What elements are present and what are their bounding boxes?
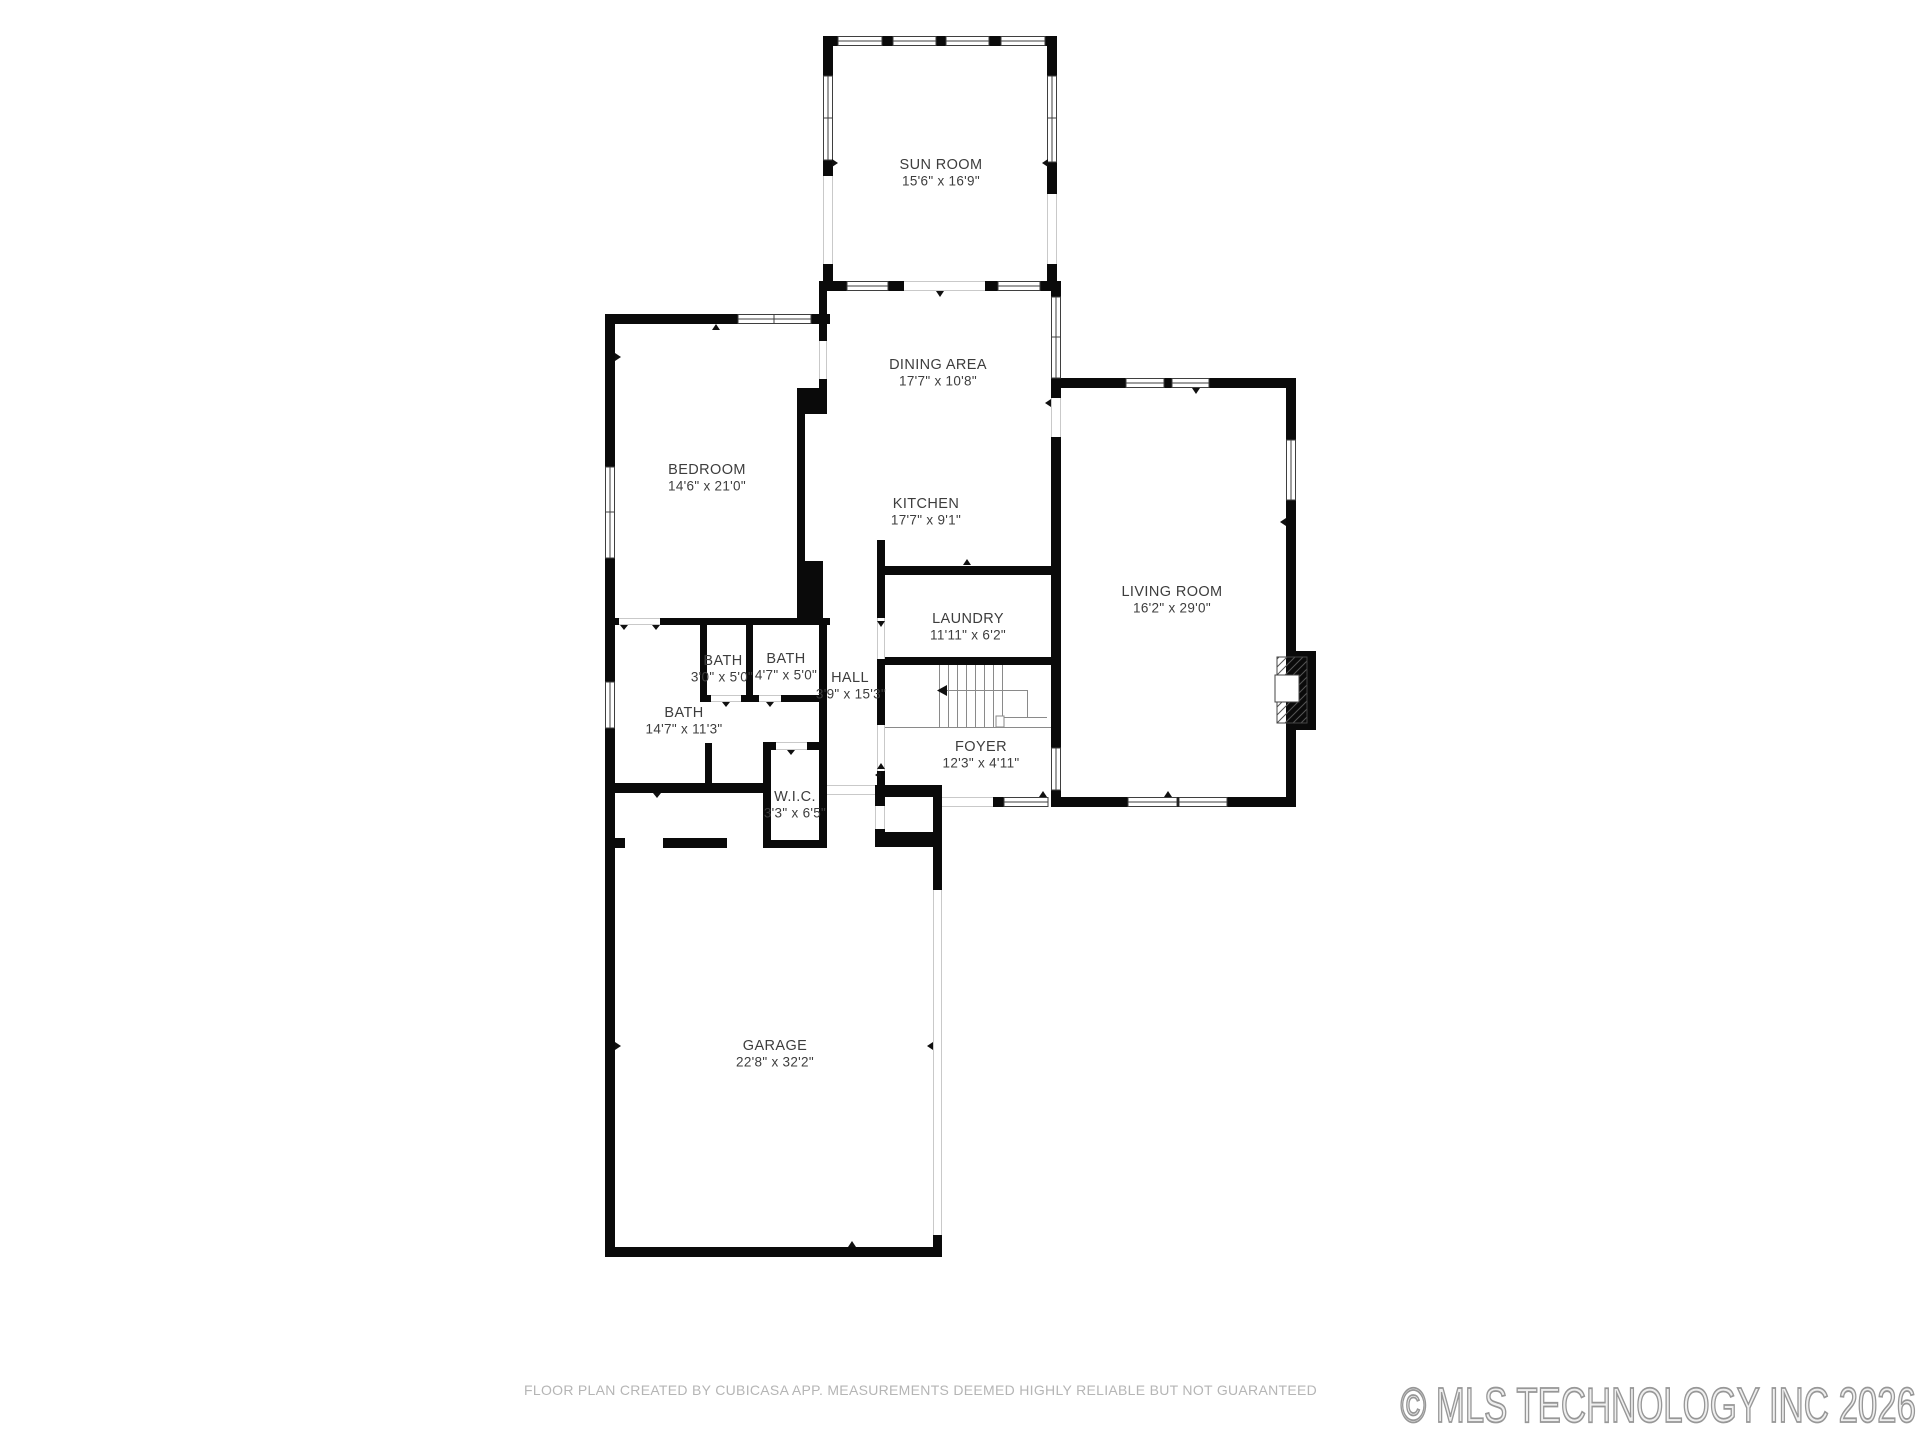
room-label-garage: GARAGE — [743, 1038, 807, 1054]
window-icon — [847, 282, 888, 291]
room-labels: SUN ROOM 15'6" x 16'9" DINING AREA 17'7"… — [646, 157, 1223, 1070]
window-icon — [1052, 748, 1061, 790]
window-icon — [824, 76, 833, 160]
room-dims-bath-main: 14'7" x 11'3" — [646, 722, 723, 737]
room-dims-wic: 3'3" x 6'5" — [764, 806, 826, 821]
walls — [605, 36, 1296, 1257]
room-label-bath-2: BATH — [766, 651, 805, 667]
window-icon — [738, 315, 811, 324]
room-label-sunroom: SUN ROOM — [900, 157, 983, 173]
window-icon — [1179, 798, 1227, 807]
room-dims-living: 16'2" x 29'0" — [1133, 601, 1211, 616]
room-dims-kitchen: 17'7" x 9'1" — [891, 513, 961, 528]
watermark: © MLS TECHNOLOGY INC 2026 — [1401, 1378, 1916, 1434]
room-label-bath-main: BATH — [664, 705, 703, 721]
room-dims-hall: 3'9" x 15'3" — [816, 687, 886, 702]
floor-plan-page: { "rooms": { "sunroom": {"name": "SUN RO… — [0, 0, 1920, 1440]
window-icon — [946, 37, 989, 46]
room-label-foyer: FOYER — [955, 739, 1007, 755]
window-icon — [1172, 379, 1209, 388]
room-label-wic: W.I.C. — [774, 789, 816, 805]
window-icon — [1126, 379, 1164, 388]
room-label-bath-1: BATH — [703, 653, 742, 669]
room-dims-bath-2: 4'7" x 5'0" — [755, 668, 817, 683]
window-icon — [838, 37, 882, 46]
window-icon — [1287, 440, 1296, 500]
window-icon — [1048, 76, 1057, 162]
room-dims-bath-1: 3'0" x 5'0" — [691, 670, 753, 685]
room-label-laundry: LAUNDRY — [932, 611, 1004, 627]
fireplace-icon — [1275, 651, 1316, 730]
room-dims-dining: 17'7" x 10'8" — [899, 374, 977, 389]
window-icon — [1128, 798, 1177, 807]
room-label-bedroom: BEDROOM — [668, 462, 746, 478]
window-icon — [1052, 297, 1061, 378]
window-icon — [606, 467, 615, 558]
room-label-dining: DINING AREA — [889, 357, 987, 373]
window-icon — [998, 282, 1040, 291]
room-dims-laundry: 11'11" x 6'2" — [930, 628, 1006, 643]
room-dims-sunroom: 15'6" x 16'9" — [902, 174, 980, 189]
floor-plan-svg: SUN ROOM 15'6" x 16'9" DINING AREA 17'7"… — [0, 0, 1920, 1440]
room-dims-foyer: 12'3" x 4'11" — [943, 756, 1020, 771]
room-label-kitchen: KITCHEN — [893, 496, 959, 512]
window-icon — [1004, 798, 1048, 807]
window-icon — [1001, 37, 1045, 46]
window-icon — [606, 682, 615, 728]
stairs-icon — [885, 665, 1051, 728]
room-dims-garage: 22'8" x 32'2" — [736, 1055, 814, 1070]
footer-disclaimer: FLOOR PLAN CREATED BY CUBICASA APP. MEAS… — [524, 1382, 1317, 1398]
window-icon — [893, 37, 936, 46]
room-dims-bedroom: 14'6" x 21'0" — [668, 479, 746, 494]
room-label-living: LIVING ROOM — [1121, 584, 1222, 600]
room-label-hall: HALL — [831, 670, 869, 686]
